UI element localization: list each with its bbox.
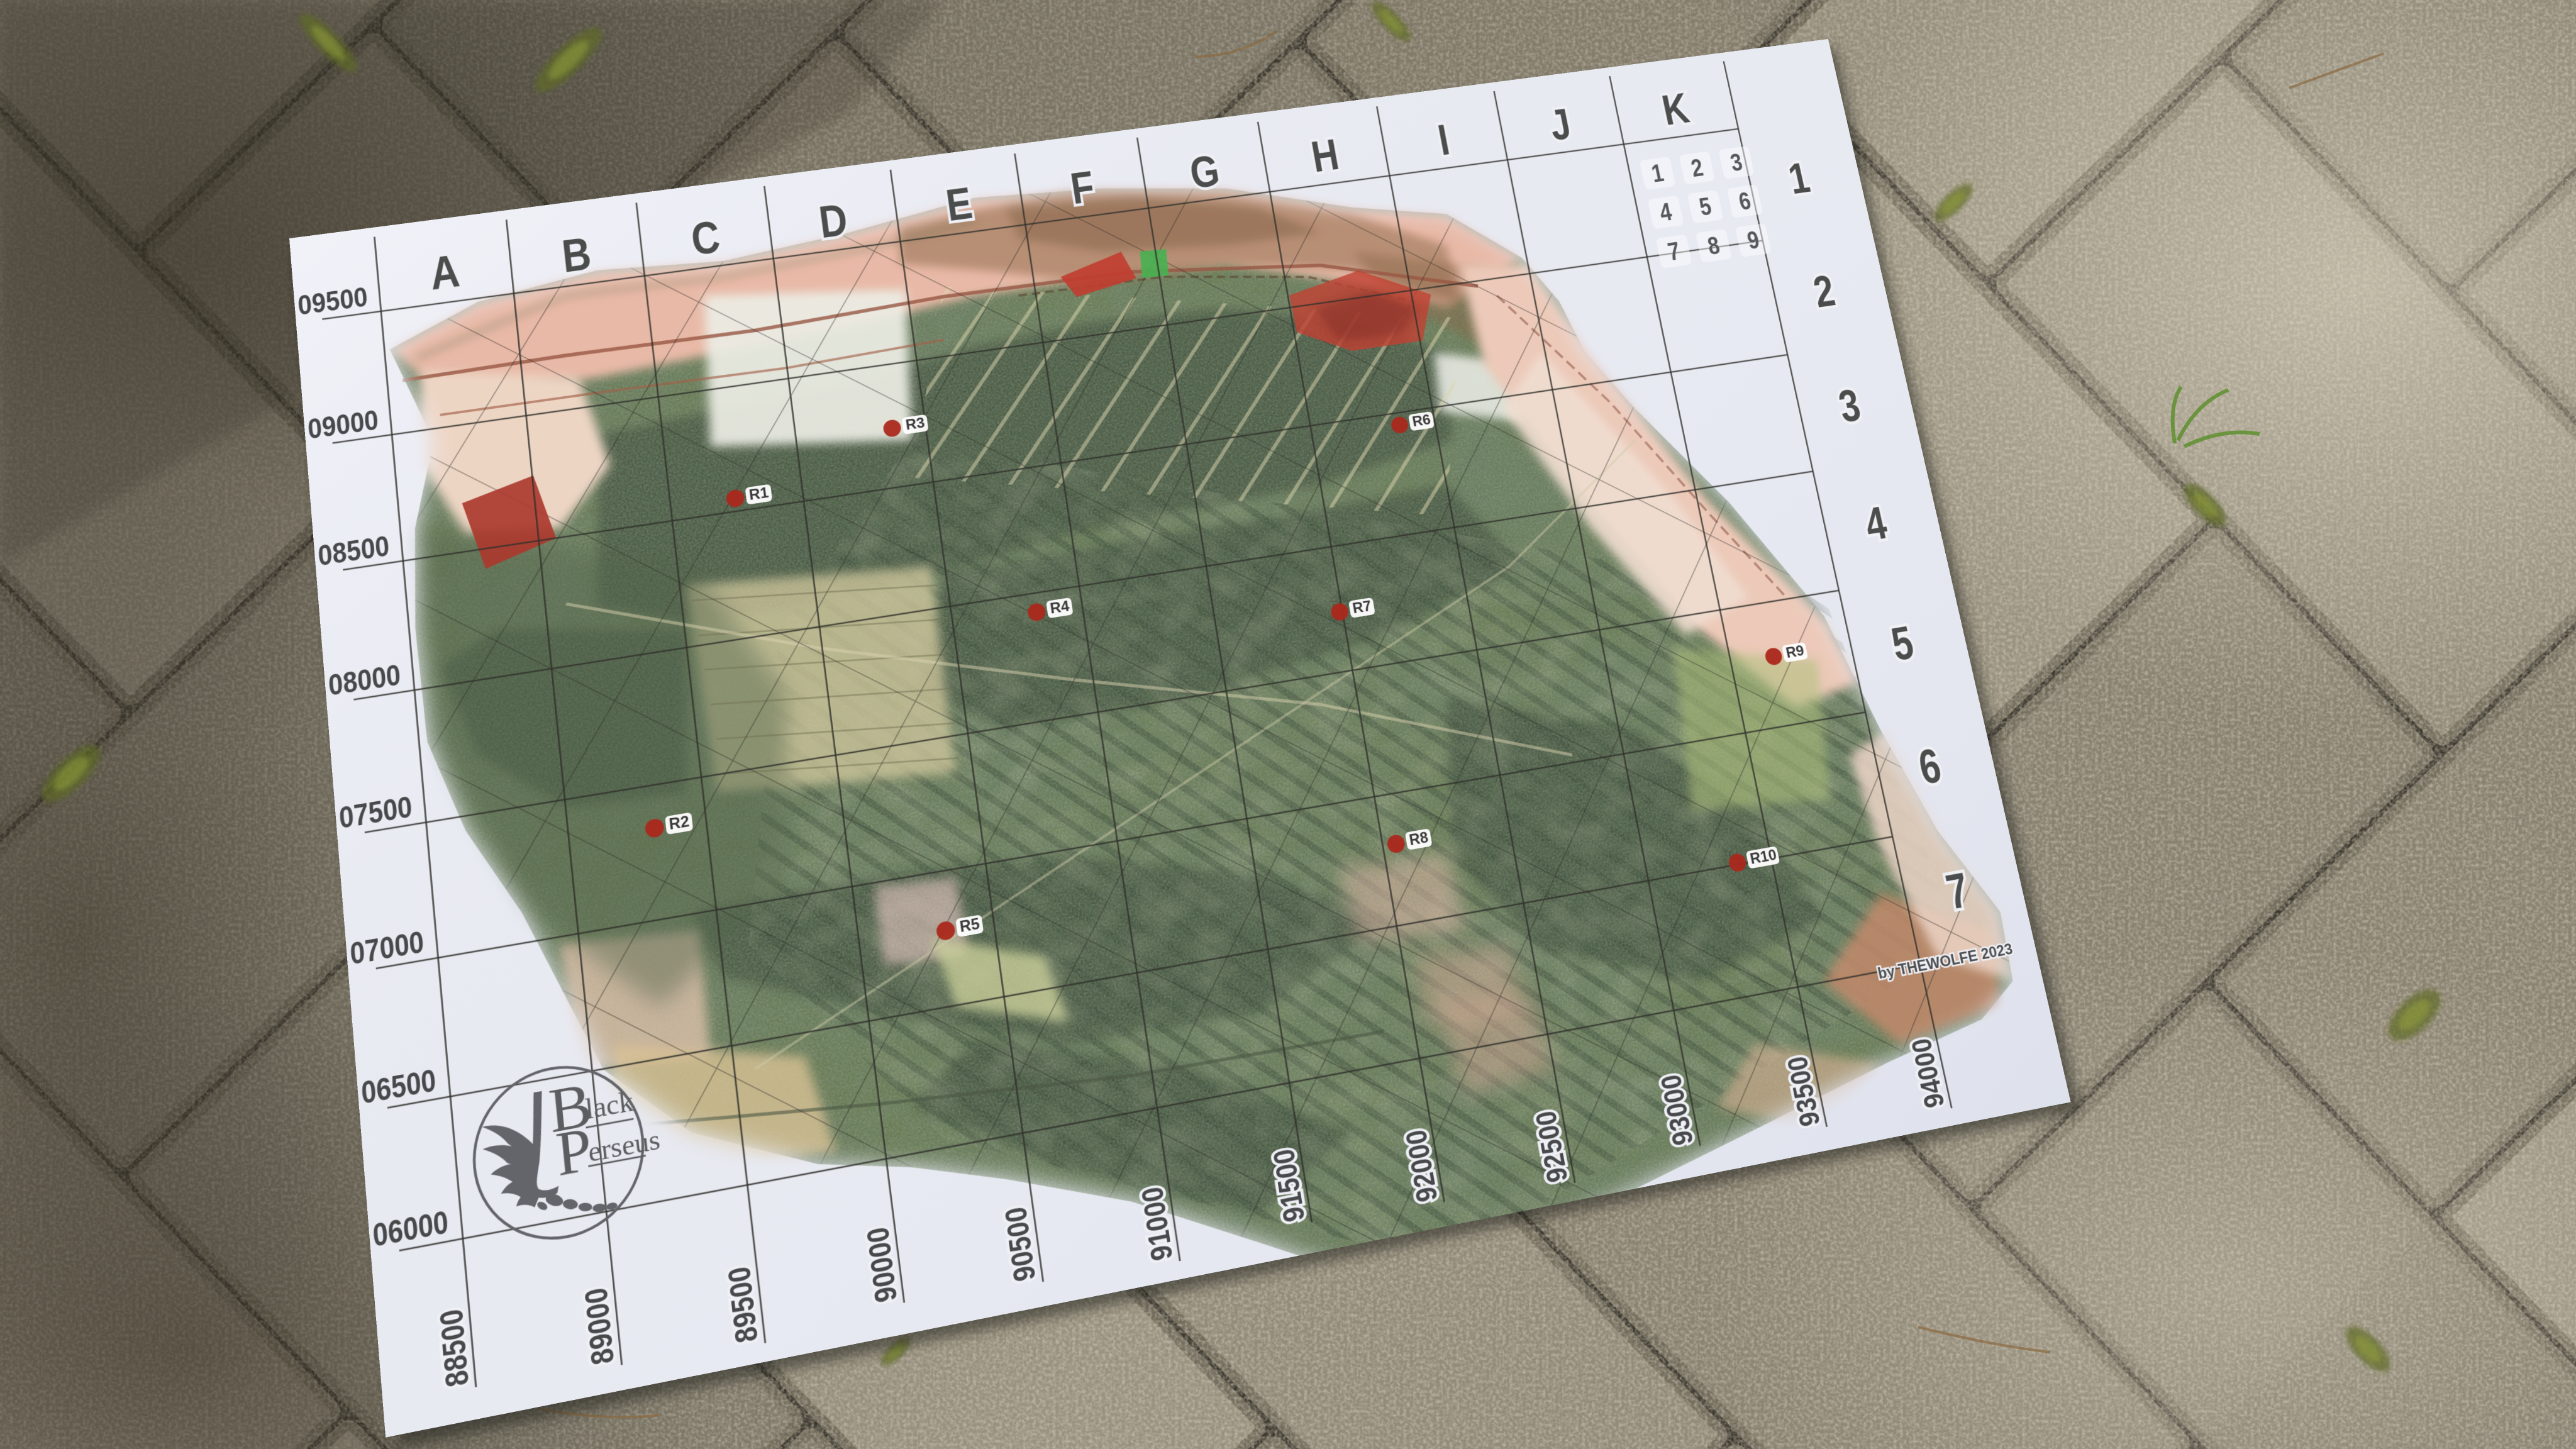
svg-text:R4: R4: [1049, 598, 1071, 617]
svg-text:R3: R3: [905, 415, 926, 433]
svg-text:R5: R5: [958, 916, 980, 936]
svg-text:R7: R7: [1352, 598, 1373, 617]
svg-text:R8: R8: [1408, 830, 1430, 849]
svg-text:R1: R1: [748, 485, 770, 504]
svg-text:A: A: [428, 245, 462, 300]
svg-text:R9: R9: [1785, 643, 1806, 662]
svg-text:88500: 88500: [433, 1306, 476, 1390]
svg-text:B: B: [560, 228, 594, 282]
svg-text:89000: 89000: [578, 1285, 622, 1368]
svg-text:R2: R2: [668, 813, 690, 833]
svg-text:R6: R6: [1411, 412, 1432, 430]
svg-text:C: C: [689, 211, 723, 265]
